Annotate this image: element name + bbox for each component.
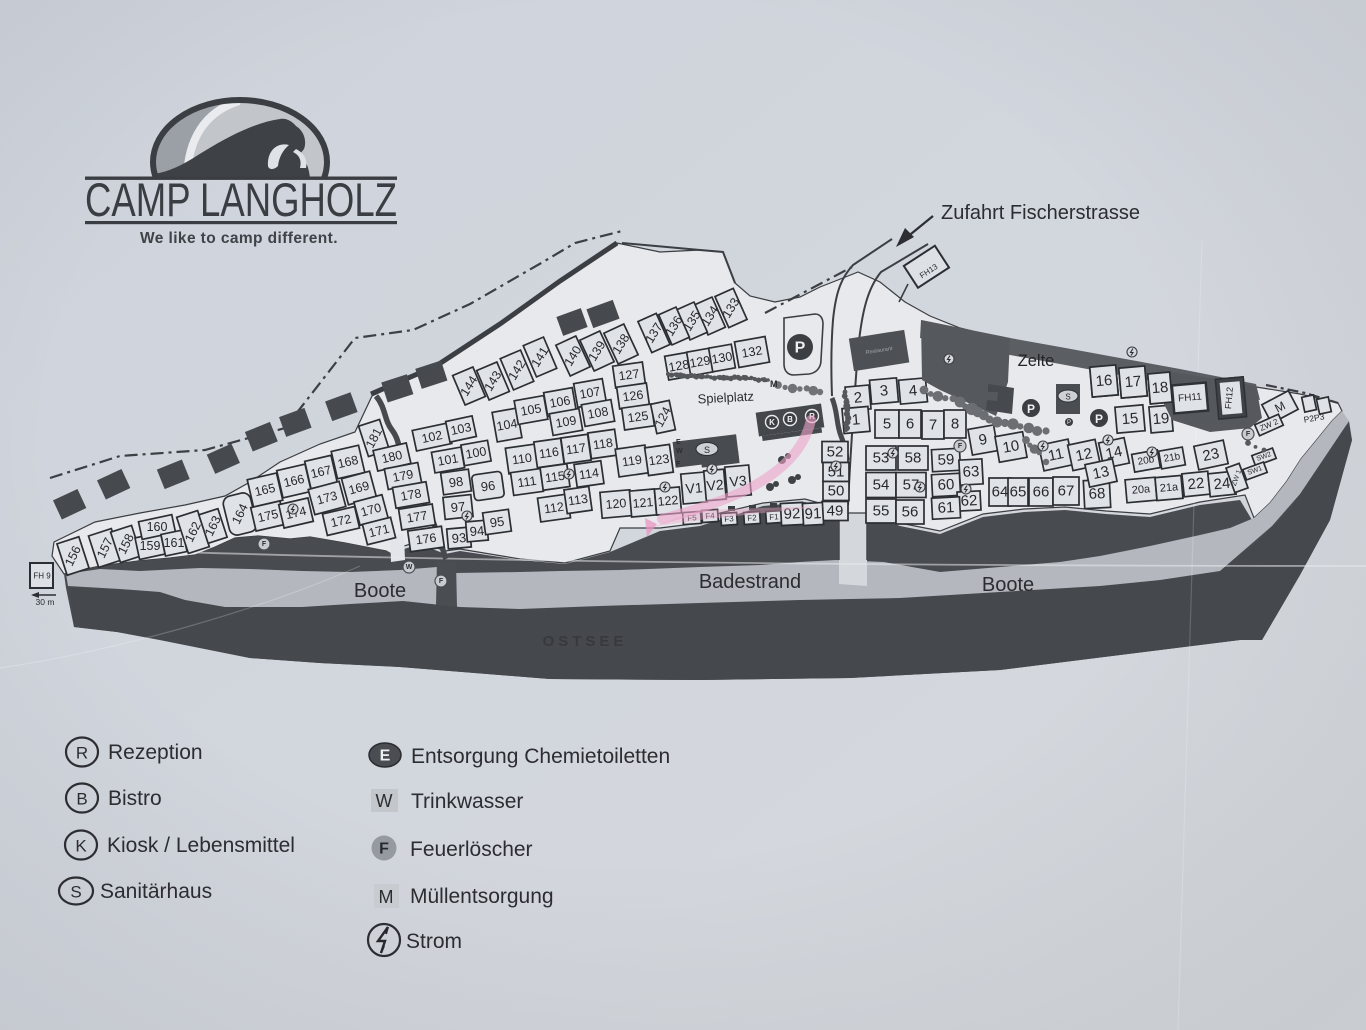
svg-text:Entsorgung Chemietoiletten: Entsorgung Chemietoiletten [411,745,670,768]
svg-text:CAMP LANGHOLZ: CAMP LANGHOLZ [85,173,397,226]
svg-text:Bistro: Bistro [108,787,162,810]
svg-text:FH12: FH12 [1223,387,1235,410]
svg-text:121: 121 [632,495,654,511]
svg-text:96: 96 [480,478,496,495]
svg-text:M: M [770,379,778,389]
svg-text:Zufahrt Fischerstrasse: Zufahrt Fischerstrasse [941,202,1140,224]
svg-text:P: P [795,340,806,357]
svg-text:P: P [1027,402,1035,416]
svg-text:M: M [379,887,394,907]
svg-text:126: 126 [622,388,645,405]
svg-text:E: E [380,748,391,765]
svg-text:125: 125 [627,409,650,426]
svg-text:Feuerlöscher: Feuerlöscher [410,838,533,861]
svg-text:94: 94 [469,523,485,539]
svg-text:53: 53 [873,450,890,467]
svg-text:W: W [676,448,683,455]
svg-text:P: P [1067,420,1071,426]
svg-text:OSTSEE: OSTSEE [543,633,628,650]
svg-text:Spielplatz: Spielplatz [697,389,754,407]
svg-text:8: 8 [951,416,959,433]
svg-text:F: F [1246,431,1251,438]
svg-text:B: B [76,790,87,809]
svg-text:127: 127 [618,367,641,384]
svg-text:Rezeption: Rezeption [108,741,203,764]
svg-text:113: 113 [567,492,589,509]
svg-text:56: 56 [902,504,919,521]
svg-text:61: 61 [937,499,955,517]
svg-text:119: 119 [621,453,643,470]
svg-text:1: 1 [851,411,861,429]
svg-text:7: 7 [929,417,937,434]
svg-text:6: 6 [906,416,914,433]
svg-text:F: F [439,578,444,585]
svg-text:65: 65 [1010,484,1027,501]
svg-text:F: F [676,461,681,468]
svg-text:Boote: Boote [354,580,406,602]
svg-text:58: 58 [905,450,922,467]
svg-text:62: 62 [960,492,978,510]
svg-text:FH 9: FH 9 [33,572,51,581]
svg-text:160: 160 [147,520,168,534]
svg-text:W: W [406,564,413,571]
svg-text:176: 176 [415,531,438,548]
svg-text:54: 54 [873,477,890,494]
svg-text:66: 66 [1033,484,1050,501]
svg-text:122: 122 [657,493,679,509]
svg-text:18: 18 [1151,379,1169,397]
svg-text:W: W [376,791,393,811]
svg-text:F: F [262,541,267,548]
svg-text:5: 5 [883,416,891,433]
svg-text:Kiosk / Lebensmittel: Kiosk / Lebensmittel [107,834,295,857]
svg-text:P: P [1095,412,1103,426]
svg-text:23: 23 [1201,445,1221,465]
svg-text:Müllentsorgung: Müllentsorgung [410,885,554,908]
svg-text:16: 16 [1095,372,1113,390]
svg-text:112: 112 [543,500,565,517]
svg-text:E: E [676,439,681,446]
svg-text:S: S [70,883,81,902]
svg-text:13: 13 [1091,463,1111,483]
svg-text:114: 114 [578,466,600,483]
svg-text:F: F [958,443,963,450]
svg-text:159: 159 [140,539,161,553]
svg-text:60: 60 [937,476,955,494]
svg-text:Zelte: Zelte [1018,352,1055,370]
svg-text:12: 12 [1074,445,1094,465]
svg-text:67: 67 [1058,483,1075,500]
svg-text:V2: V2 [706,476,725,493]
svg-text:95: 95 [489,514,505,531]
svg-text:93: 93 [451,530,467,546]
svg-text:64: 64 [992,484,1009,501]
svg-text:Strom: Strom [406,930,462,953]
svg-text:2: 2 [853,389,863,407]
svg-text:117: 117 [565,441,587,458]
svg-text:30 m: 30 m [36,597,55,607]
svg-text:115: 115 [544,469,566,486]
svg-text:Badestrand: Badestrand [699,571,801,593]
svg-text:19: 19 [1152,410,1170,428]
svg-text:Trinkwasser: Trinkwasser [411,790,523,813]
svg-text:FH11: FH11 [1178,391,1203,404]
svg-text:V1: V1 [685,479,704,496]
svg-text:S: S [704,445,710,455]
svg-text:63: 63 [962,463,980,481]
svg-text:S: S [1065,393,1070,402]
svg-text:F1: F1 [769,512,779,522]
svg-text:49: 49 [827,503,844,520]
svg-text:98: 98 [448,474,464,491]
svg-text:K: K [75,837,87,856]
svg-text:15: 15 [1121,410,1139,428]
svg-text:123: 123 [648,452,671,469]
svg-text:55: 55 [873,503,890,520]
svg-text:K: K [769,418,775,427]
svg-text:4: 4 [908,382,918,400]
svg-text:116: 116 [538,445,560,462]
svg-text:20a: 20a [1131,483,1151,497]
svg-text:17: 17 [1124,373,1142,391]
svg-text:59: 59 [937,451,955,469]
svg-text:R: R [76,744,88,763]
svg-text:3: 3 [879,382,889,400]
svg-text:Sanitärhaus: Sanitärhaus [100,880,212,903]
svg-text:We like to camp different.: We like to camp different. [140,230,338,247]
svg-text:120: 120 [605,496,627,512]
svg-text:Boote: Boote [982,574,1034,596]
svg-text:110: 110 [511,451,533,468]
svg-text:118: 118 [592,436,614,453]
svg-text:F: F [379,841,389,858]
svg-text:21a: 21a [1159,481,1179,495]
svg-text:111: 111 [517,474,538,491]
svg-text:50: 50 [828,483,845,500]
svg-text:10: 10 [1001,437,1020,457]
svg-text:52: 52 [827,444,844,461]
svg-text:22: 22 [1187,475,1205,494]
svg-text:24: 24 [1213,475,1231,494]
svg-text:B: B [787,415,793,424]
